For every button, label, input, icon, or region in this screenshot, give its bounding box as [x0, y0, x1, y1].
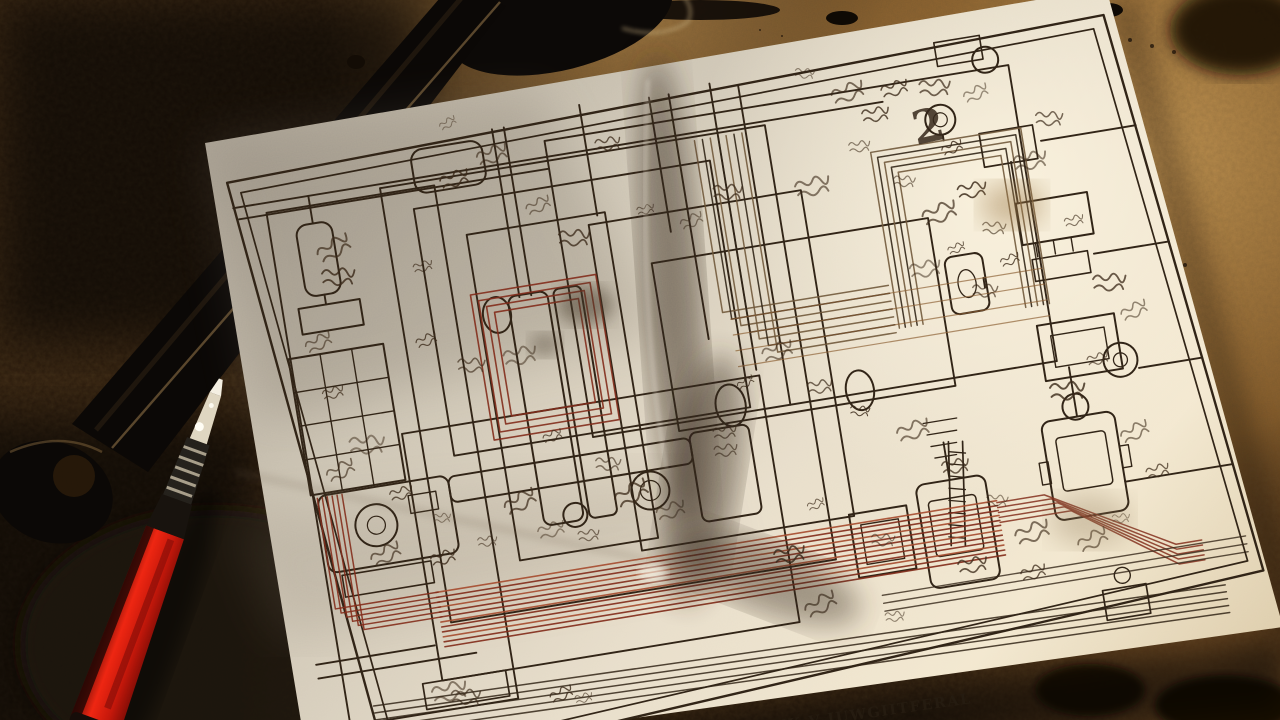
photo-canvas: 2 IUII GA ELOVD XGUK V IUWGIITFERAL — [0, 0, 1280, 720]
photo-scene: 2 IUII GA ELOVD XGUK V IUWGIITFERAL — [0, 0, 1280, 720]
